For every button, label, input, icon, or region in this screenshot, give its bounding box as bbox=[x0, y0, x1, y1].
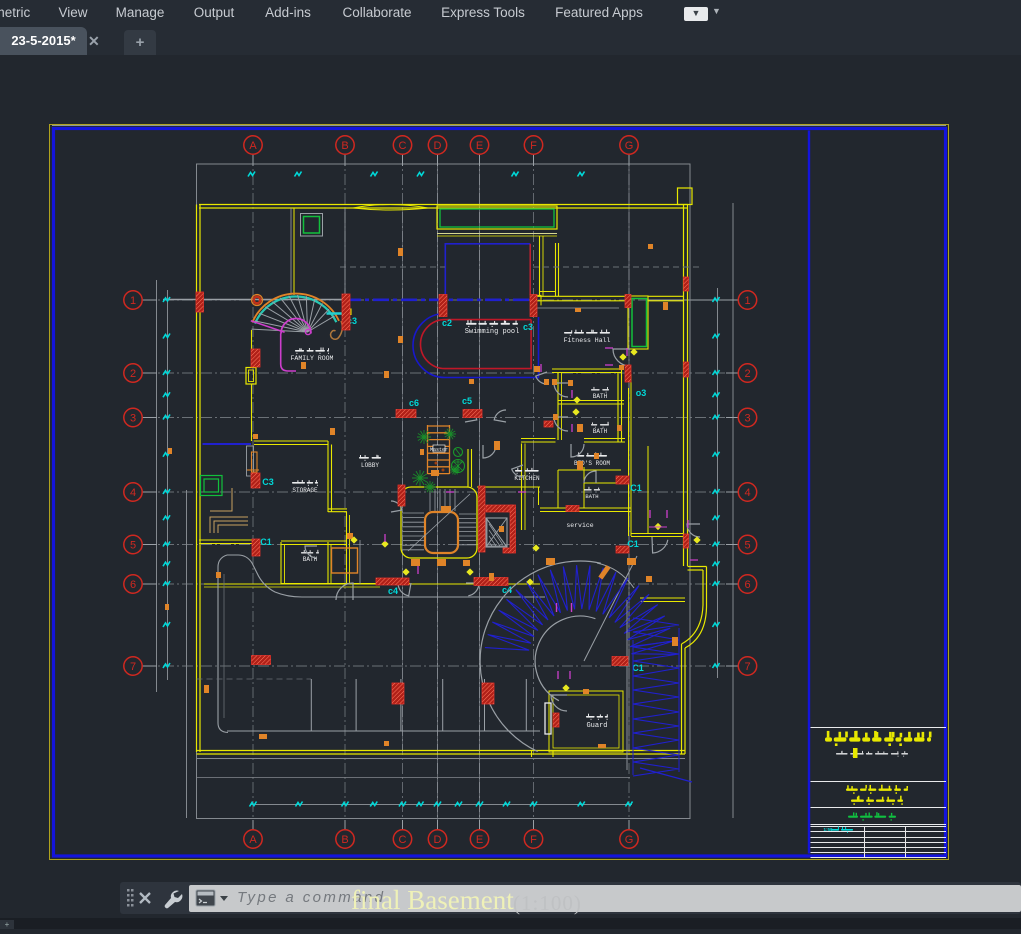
svg-text:BATH: BATH bbox=[303, 556, 318, 563]
svg-text:5: 5 bbox=[130, 540, 136, 552]
svg-text:service: service bbox=[566, 522, 593, 529]
svg-text:G: G bbox=[625, 140, 634, 152]
svg-text:C1: C1 bbox=[632, 663, 644, 673]
svg-text:G: G bbox=[625, 834, 634, 846]
svg-text:2: 2 bbox=[744, 368, 750, 380]
svg-text:3: 3 bbox=[744, 413, 750, 425]
svg-text:c2: c2 bbox=[442, 318, 452, 328]
svg-text:4: 4 bbox=[130, 487, 136, 499]
svg-text:BATH: BATH bbox=[593, 393, 608, 400]
svg-text:C1: C1 bbox=[630, 483, 642, 493]
svg-text:3: 3 bbox=[130, 413, 136, 425]
svg-text:F: F bbox=[530, 834, 537, 846]
svg-text:o3: o3 bbox=[636, 388, 647, 398]
svg-text:B: B bbox=[341, 140, 348, 152]
svg-text:BATH: BATH bbox=[593, 428, 608, 435]
svg-text:c4: c4 bbox=[388, 586, 398, 596]
svg-text:A: A bbox=[249, 834, 257, 846]
svg-text:A: A bbox=[249, 140, 257, 152]
svg-text:1: 1 bbox=[744, 295, 750, 307]
svg-text:7: 7 bbox=[130, 661, 136, 673]
svg-text:c4: c4 bbox=[502, 585, 512, 595]
svg-text:C1: C1 bbox=[260, 537, 272, 547]
svg-text:LOBBY: LOBBY bbox=[361, 462, 379, 469]
svg-text:7: 7 bbox=[744, 661, 750, 673]
svg-text:2: 2 bbox=[130, 368, 136, 380]
svg-text:6: 6 bbox=[744, 579, 750, 591]
svg-text:D: D bbox=[434, 140, 442, 152]
svg-text:c3: c3 bbox=[523, 322, 533, 332]
svg-text:STORAGE: STORAGE bbox=[292, 487, 318, 494]
svg-text:BATH: BATH bbox=[585, 493, 598, 500]
svg-text:C: C bbox=[399, 834, 407, 846]
svg-text:F: F bbox=[530, 140, 537, 152]
svg-text:E: E bbox=[476, 140, 483, 152]
svg-text:E: E bbox=[476, 834, 483, 846]
svg-text:1: 1 bbox=[130, 295, 136, 307]
svg-text:c6: c6 bbox=[409, 398, 419, 408]
svg-text:Swimming pool: Swimming pool bbox=[465, 328, 520, 336]
svg-text:c5: c5 bbox=[462, 396, 472, 406]
svg-text:C: C bbox=[399, 140, 407, 152]
svg-text:5: 5 bbox=[744, 540, 750, 552]
svg-text:B: B bbox=[341, 834, 348, 846]
svg-text:4: 4 bbox=[744, 487, 750, 499]
svg-text:FAMILY ROOM: FAMILY ROOM bbox=[291, 355, 334, 362]
svg-text:D: D bbox=[434, 834, 442, 846]
svg-text:Master: Master bbox=[430, 447, 448, 453]
svg-text:6: 6 bbox=[130, 579, 136, 591]
svg-text:Fitness Hall: Fitness Hall bbox=[564, 337, 611, 344]
svg-text:Guard: Guard bbox=[586, 722, 607, 730]
svg-text:C3: C3 bbox=[262, 477, 274, 487]
